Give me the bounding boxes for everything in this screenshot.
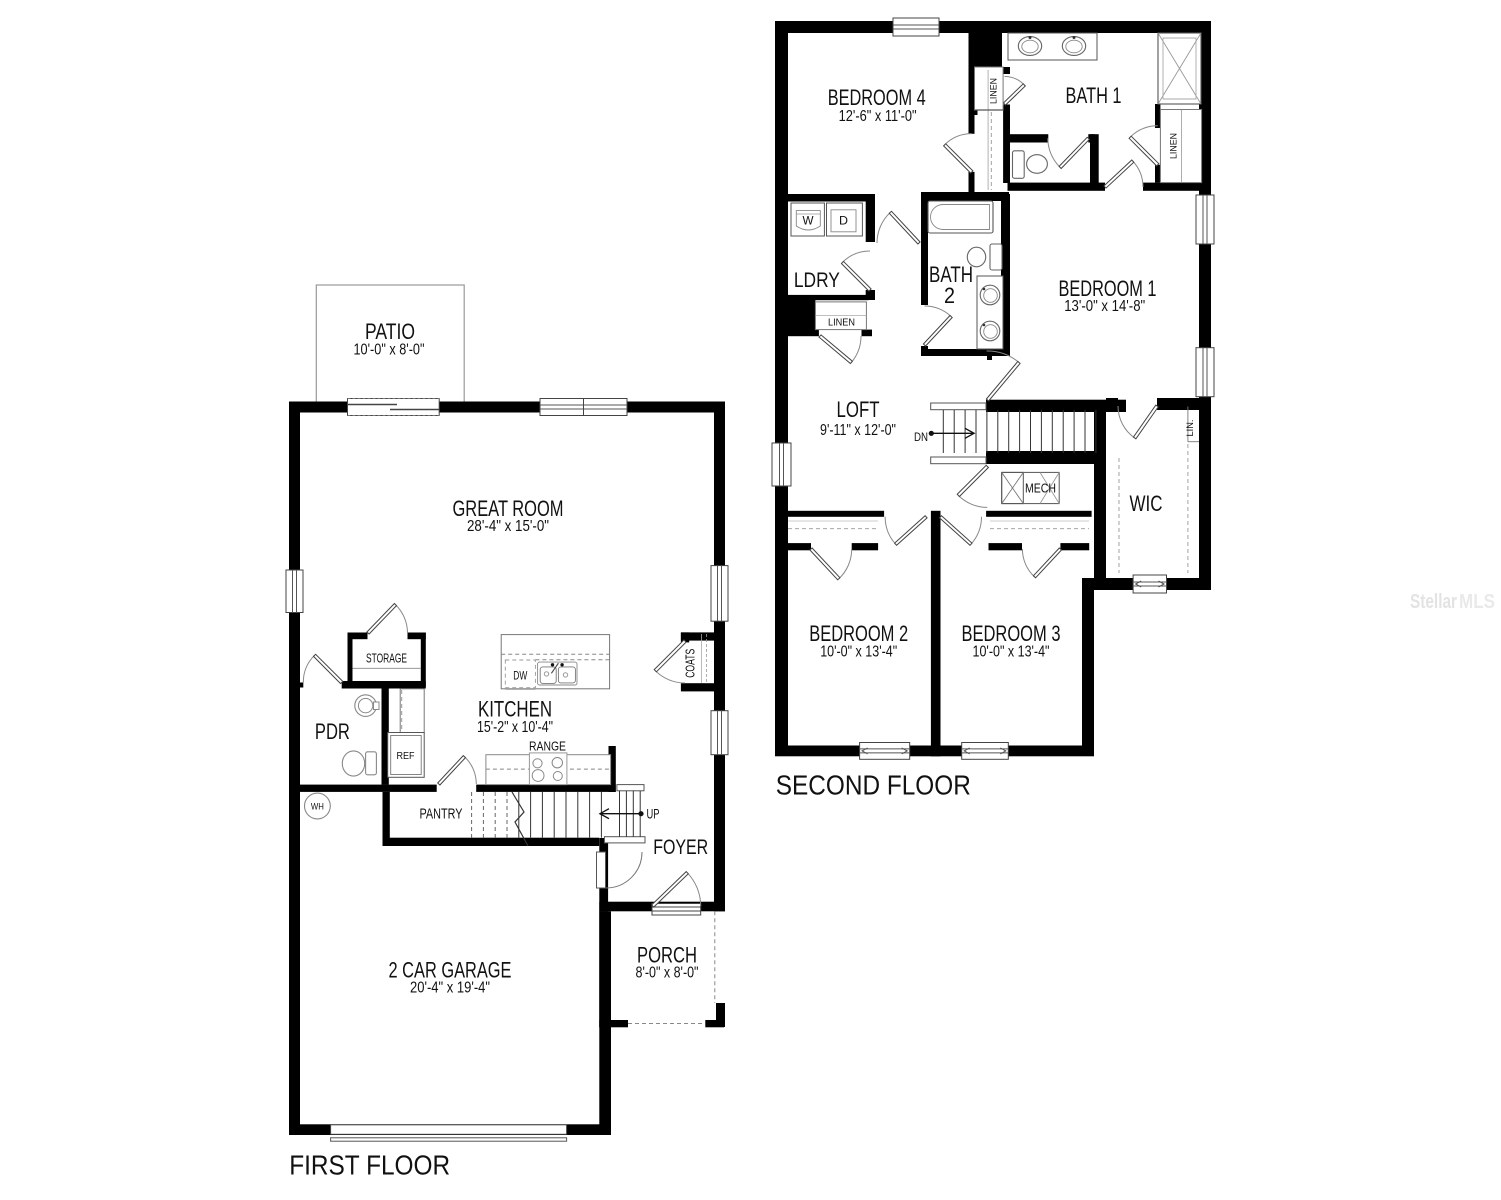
- svg-text:LINEN: LINEN: [989, 78, 999, 104]
- svg-text:LINEN: LINEN: [828, 318, 855, 329]
- svg-text:RANGE: RANGE: [529, 739, 566, 754]
- svg-text:DW: DW: [513, 669, 527, 683]
- svg-text:FOYER: FOYER: [653, 836, 708, 859]
- svg-text:10'-0" x 13'-4": 10'-0" x 13'-4": [973, 644, 1050, 661]
- svg-text:10'-0" x 13'-4": 10'-0" x 13'-4": [820, 644, 897, 661]
- svg-text:LDRY: LDRY: [794, 269, 840, 292]
- svg-text:W: W: [803, 214, 815, 228]
- svg-text:DN: DN: [914, 432, 928, 444]
- svg-text:Stellar: Stellar: [1410, 591, 1457, 613]
- svg-text:20'-4" x 19'-4": 20'-4" x 19'-4": [410, 980, 490, 997]
- svg-text:FIRST FLOOR: FIRST FLOOR: [289, 1150, 450, 1181]
- svg-text:LINEN: LINEN: [1169, 133, 1179, 159]
- svg-text:LIN.: LIN.: [1185, 420, 1195, 437]
- svg-text:BEDROOM 3: BEDROOM 3: [962, 621, 1061, 646]
- svg-text:COATS: COATS: [684, 649, 698, 678]
- svg-text:SECOND FLOOR: SECOND FLOOR: [776, 770, 971, 801]
- svg-text:WIC: WIC: [1130, 491, 1163, 516]
- svg-text:9'-11" x 12'-0": 9'-11" x 12'-0": [820, 422, 896, 439]
- svg-text:D: D: [839, 214, 848, 228]
- svg-text:PDR: PDR: [315, 719, 350, 744]
- svg-text:PANTRY: PANTRY: [420, 806, 463, 823]
- svg-text:LOFT: LOFT: [837, 397, 880, 422]
- svg-text:28'-4" x 15'-0": 28'-4" x 15'-0": [467, 518, 549, 535]
- svg-text:8'-0" x 8'-0": 8'-0" x 8'-0": [636, 965, 699, 982]
- svg-text:13'-0" x 14'-8": 13'-0" x 14'-8": [1064, 298, 1145, 315]
- svg-text:WH: WH: [311, 802, 324, 812]
- svg-text:STORAGE: STORAGE: [366, 652, 407, 666]
- svg-text:BEDROOM 2: BEDROOM 2: [809, 621, 908, 646]
- svg-text:2: 2: [944, 283, 955, 308]
- svg-text:PATIO: PATIO: [365, 319, 415, 344]
- svg-text:KITCHEN: KITCHEN: [478, 697, 552, 722]
- svg-text:10'-0" x 8'-0": 10'-0" x 8'-0": [354, 342, 425, 359]
- svg-text:BEDROOM 4: BEDROOM 4: [828, 85, 926, 110]
- svg-text:15'-2" x 10'-4": 15'-2" x 10'-4": [477, 719, 553, 736]
- svg-text:REF: REF: [397, 750, 415, 762]
- svg-text:MECH: MECH: [1025, 482, 1056, 496]
- svg-text:12'-6" x 11'-0": 12'-6" x 11'-0": [839, 108, 917, 125]
- svg-text:UP: UP: [647, 807, 660, 822]
- svg-text:MLS: MLS: [1459, 591, 1495, 613]
- svg-text:BATH 1: BATH 1: [1066, 83, 1122, 108]
